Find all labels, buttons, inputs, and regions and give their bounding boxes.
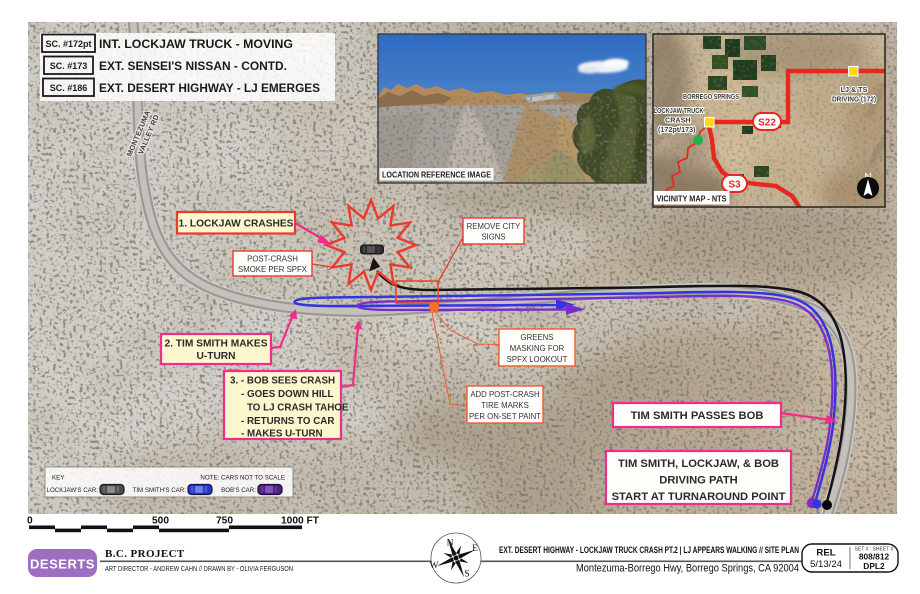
svg-text:- MAKES U-TURN: - MAKES U-TURN (241, 429, 323, 440)
svg-text:E: E (472, 544, 478, 554)
svg-text:1000 FT: 1000 FT (281, 516, 320, 527)
svg-text:REL: REL (816, 548, 835, 559)
svg-text:SC. #172pt: SC. #172pt (45, 39, 91, 49)
svg-text:S22: S22 (758, 118, 776, 129)
svg-text:B.C. PROJECT: B.C. PROJECT (105, 548, 185, 560)
svg-text:CRASH: CRASH (665, 116, 691, 125)
svg-text:808/812: 808/812 (859, 552, 890, 562)
svg-text:DESERTS: DESERTS (30, 557, 95, 572)
svg-text:TIM SMITH'S CAR:: TIM SMITH'S CAR: (133, 487, 187, 494)
svg-text:SC. #173: SC. #173 (50, 61, 88, 71)
svg-text:TO LJ CRASH TAHOE: TO LJ CRASH TAHOE (247, 403, 349, 414)
svg-text:750: 750 (216, 516, 233, 527)
svg-text:EXT. DESERT HIGHWAY - LOCKJAW: EXT. DESERT HIGHWAY - LOCKJAW TRUCK CRAS… (499, 545, 799, 555)
svg-text:REMOVE CITY: REMOVE CITY (467, 222, 522, 231)
svg-text:- RETURNS TO CAR: - RETURNS TO CAR (241, 416, 334, 427)
svg-text:(172pt/173): (172pt/173) (658, 125, 696, 134)
svg-text:ADD POST-CRASH: ADD POST-CRASH (470, 390, 539, 399)
svg-text:EXT. DESERT HIGHWAY - LJ EMERG: EXT. DESERT HIGHWAY - LJ EMERGES (99, 81, 320, 95)
svg-text:SMOKE PER SPFX: SMOKE PER SPFX (238, 265, 308, 274)
svg-text:5/13/24: 5/13/24 (810, 559, 843, 570)
svg-text:- GOES DOWN HILL: - GOES DOWN HILL (241, 389, 334, 400)
svg-text:N: N (447, 539, 454, 549)
svg-text:NOTE: CARS NOT TO SCALE: NOTE: CARS NOT TO SCALE (200, 475, 285, 482)
svg-text:DRIVING (172): DRIVING (172) (832, 95, 877, 104)
svg-text:ART DIRECTOR - ANDREW CAHN //: ART DIRECTOR - ANDREW CAHN // DRAWN BY -… (105, 566, 293, 573)
svg-text:TIM SMITH, LOCKJAW, & BOB: TIM SMITH, LOCKJAW, & BOB (618, 458, 779, 470)
svg-text:SC. #186: SC. #186 (50, 83, 88, 93)
svg-text:W: W (430, 561, 439, 571)
svg-text:SPFX LOOKOUT: SPFX LOOKOUT (507, 355, 568, 364)
svg-text:DPL2: DPL2 (863, 561, 885, 571)
svg-text:DRIVING PATH: DRIVING PATH (659, 475, 738, 487)
svg-text:LJ & TS: LJ & TS (841, 85, 868, 94)
svg-text:0: 0 (27, 516, 33, 527)
svg-text:BOB'S CAR:: BOB'S CAR: (221, 487, 256, 494)
svg-text:BORREGO SPRINGS: BORREGO SPRINGS (683, 92, 739, 101)
svg-text:PER ON-SET PAINT: PER ON-SET PAINT (469, 412, 541, 421)
svg-text:2. TIM SMITH MAKES: 2. TIM SMITH MAKES (164, 339, 267, 350)
svg-text:MASKING FOR: MASKING FOR (510, 344, 565, 353)
svg-text:KEY: KEY (52, 475, 64, 482)
svg-text:TIM SMITH PASSES BOB: TIM SMITH PASSES BOB (631, 410, 764, 422)
svg-text:U-TURN: U-TURN (196, 351, 235, 362)
svg-text:S: S (464, 570, 469, 580)
svg-text:EXT. SENSEI'S NISSAN - CONTD.: EXT. SENSEI'S NISSAN - CONTD. (99, 59, 287, 73)
svg-text:Montezuma-Borrego Hwy, Borrego: Montezuma-Borrego Hwy, Borrego Springs, … (576, 563, 799, 575)
svg-text:SIGNS: SIGNS (481, 233, 505, 242)
svg-text:3. - BOB SEES CRASH: 3. - BOB SEES CRASH (230, 376, 335, 387)
svg-text:START AT TURNAROUND POINT: START AT TURNAROUND POINT (612, 491, 786, 503)
svg-text:VICINITY MAP - NTS: VICINITY MAP - NTS (657, 194, 727, 204)
svg-text:LOCKJAW TRUCK: LOCKJAW TRUCK (654, 106, 705, 115)
svg-text:POST-CRASH: POST-CRASH (247, 255, 298, 264)
svg-text:500: 500 (152, 516, 169, 527)
svg-text:1. LOCKJAW CRASHES: 1. LOCKJAW CRASHES (179, 219, 294, 230)
svg-text:S3: S3 (728, 180, 741, 191)
svg-text:TIRE MARKS: TIRE MARKS (481, 401, 529, 410)
svg-text:LOCKJAW'S CAR:: LOCKJAW'S CAR: (47, 487, 99, 494)
svg-text:INT. LOCKJAW TRUCK - MOVING: INT. LOCKJAW TRUCK - MOVING (99, 37, 293, 51)
svg-text:LOCATION REFERENCE IMAGE: LOCATION REFERENCE IMAGE (382, 170, 491, 180)
svg-text:GREENS: GREENS (521, 333, 554, 342)
